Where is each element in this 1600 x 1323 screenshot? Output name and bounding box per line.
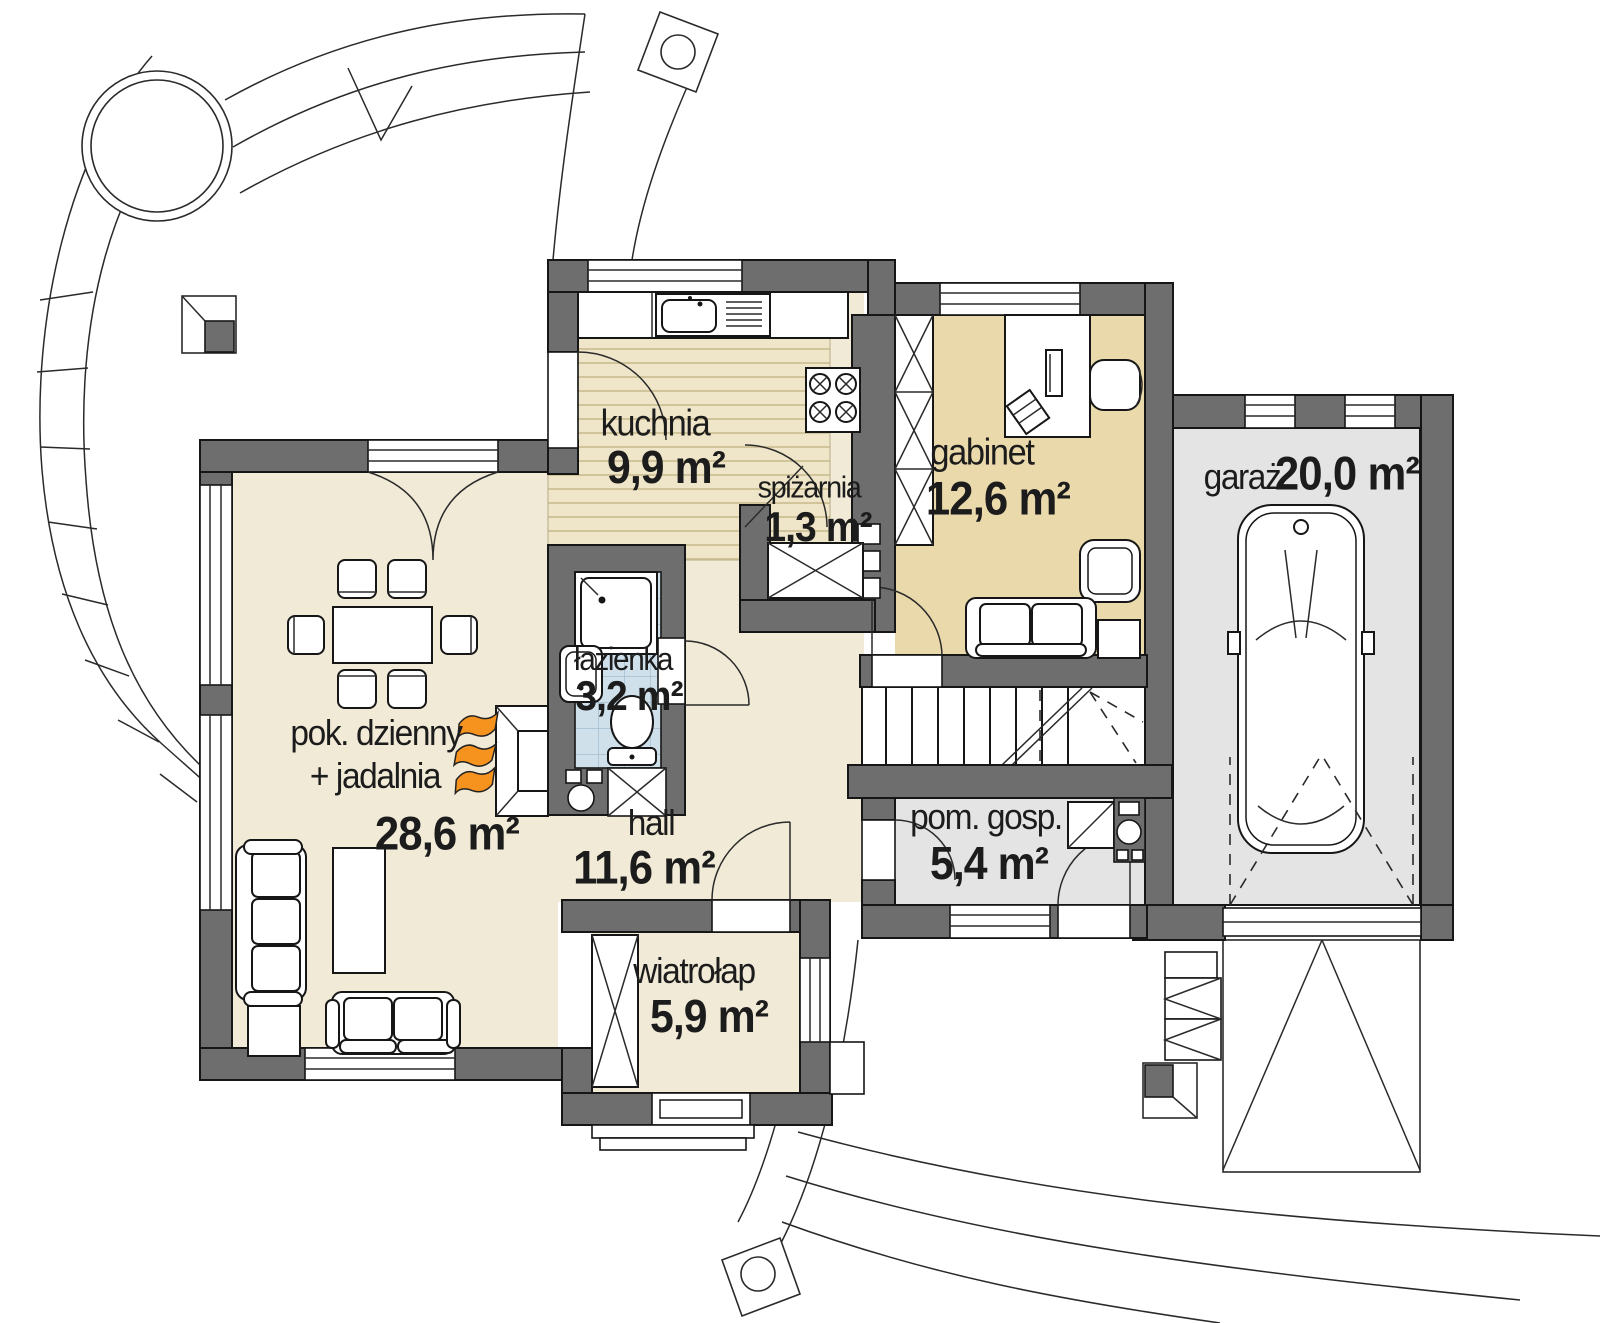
chimney-block-site	[182, 296, 236, 353]
room-label-lazienka: łazienka	[574, 643, 672, 675]
exterior-stairs-right	[1165, 952, 1221, 1060]
window-garage-2	[1345, 395, 1395, 428]
window-wiatrolap	[800, 958, 830, 1042]
armchair	[1080, 540, 1140, 602]
room-label-pom-gosp: pom. gosp.	[910, 799, 1062, 835]
room-area-kuchnia: 9,9 m²	[607, 444, 725, 490]
room-label-wiatrolap: wiatrołap	[633, 953, 754, 989]
car-top-view	[1228, 505, 1374, 853]
garden-path-curves	[782, 1132, 1600, 1323]
pergola-post-top-icon	[638, 12, 718, 92]
room-area-gabinet: 12,6 m²	[926, 475, 1070, 522]
chimney-block-bottom	[1143, 1063, 1197, 1118]
room-area-pom-gosp: 5,4 m²	[930, 840, 1048, 886]
entrance-door	[652, 1093, 750, 1125]
stove-icon	[806, 368, 860, 432]
wiatrolap-wardrobe	[592, 935, 638, 1087]
room-label-jadalnia: + jadalnia	[310, 758, 440, 794]
pergola-post-bottom-icon	[722, 1238, 800, 1316]
room-label-pok-dzienny: pok. dzienny	[290, 715, 461, 751]
washer-icon	[1068, 802, 1114, 848]
dining-table	[333, 607, 432, 663]
room-area-garaz: 20,0 m²	[1275, 450, 1419, 497]
sofa-3seat	[236, 840, 306, 1006]
kitchen-sink-icon	[656, 294, 770, 336]
room-label-garaz: garaż	[1204, 459, 1281, 495]
room-area-hall: 11,6 m²	[573, 844, 715, 891]
window-living-left-2	[200, 715, 232, 910]
gabinet-sofa	[966, 598, 1096, 658]
room-area-wiatrolap: 5,9 m²	[650, 993, 768, 1039]
window-pom-gosp	[950, 905, 1050, 938]
room-label-gabinet: gabinet	[930, 434, 1033, 471]
room-label-hall: hall	[628, 805, 675, 841]
room-area-lazienka: 3,2 m²	[575, 675, 682, 717]
round-terrace	[82, 71, 232, 221]
window-living-left-1	[200, 485, 232, 685]
desk-chair	[1090, 360, 1142, 410]
living-side-table	[248, 1006, 300, 1056]
floor-plan-drawing	[0, 0, 1600, 1323]
curved-pergola-top	[225, 14, 700, 260]
gabinet-side-table	[1098, 620, 1140, 658]
window-kitchen	[588, 260, 742, 292]
utility-sink-icon	[1114, 798, 1145, 862]
floor-plan-canvas: kuchnia 9,9 m² spiżarnia 1,3 m² gabinet …	[0, 0, 1600, 1323]
window-garage-1	[1245, 395, 1295, 428]
room-label-kuchnia: kuchnia	[601, 405, 710, 442]
entrance-steps	[592, 1125, 754, 1150]
room-area-pok-dzienny: 28,6 m²	[375, 810, 519, 857]
sofa-2seat	[326, 992, 460, 1054]
monitor-icon	[1046, 350, 1062, 396]
desk	[1005, 315, 1090, 437]
pantry-shelf	[768, 543, 863, 598]
window-gabinet	[940, 283, 1080, 315]
coffee-table	[333, 848, 385, 973]
stairs	[862, 687, 1145, 765]
side-step	[830, 1042, 864, 1094]
room-label-spizarnia: spiżarnia	[758, 472, 861, 503]
room-area-spizarnia: 1,3 m²	[764, 506, 871, 548]
garage-door-opening	[1223, 908, 1421, 936]
driveway	[1223, 940, 1420, 1172]
